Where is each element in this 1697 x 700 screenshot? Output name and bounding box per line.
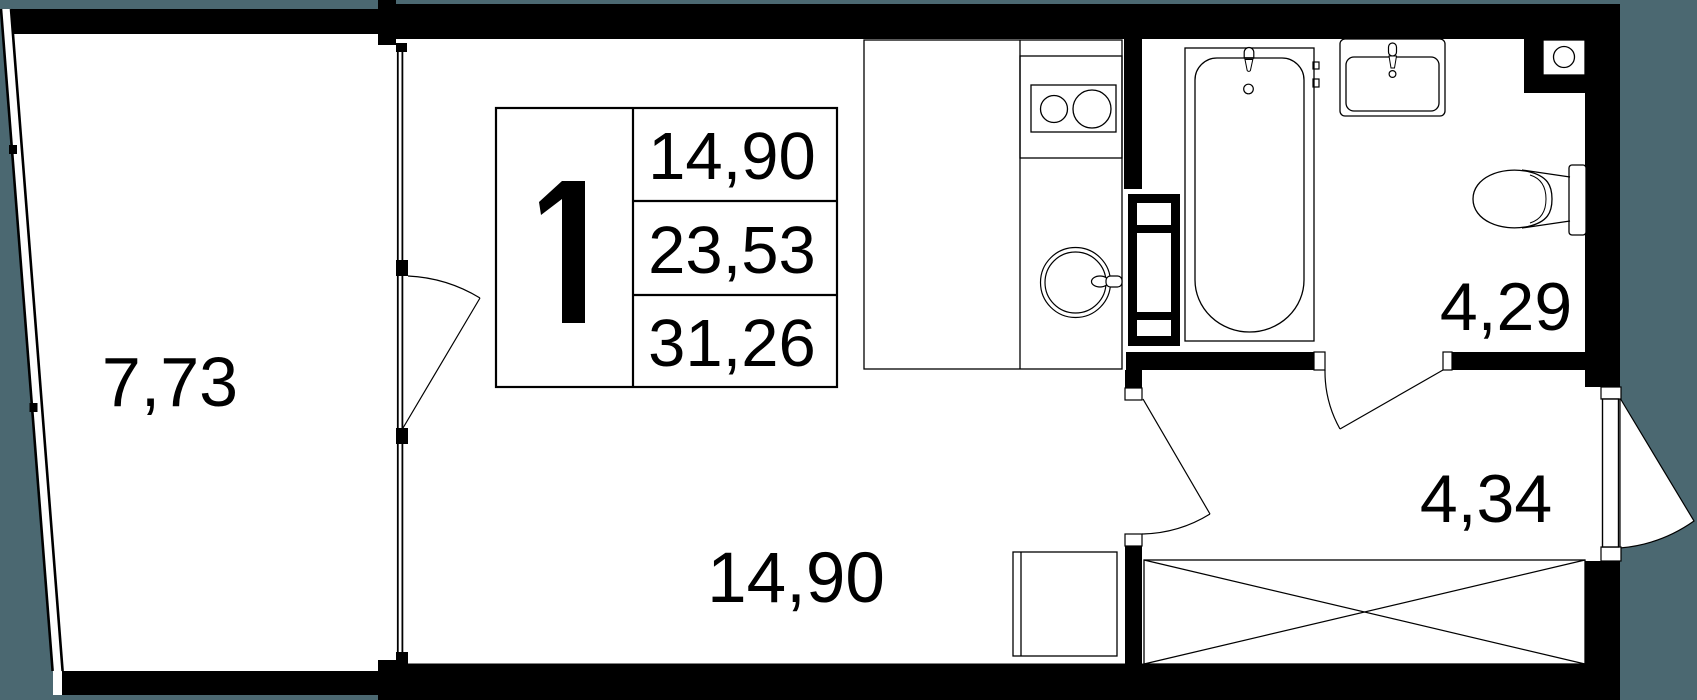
svg-text:7,73: 7,73 xyxy=(102,343,238,421)
svg-text:23,53: 23,53 xyxy=(648,213,816,288)
svg-text:4,34: 4,34 xyxy=(1420,461,1552,537)
svg-text:14,90: 14,90 xyxy=(648,119,816,194)
svg-text:4,29: 4,29 xyxy=(1440,269,1572,345)
svg-text:14,90: 14,90 xyxy=(707,539,885,618)
svg-text:31,26: 31,26 xyxy=(648,306,816,381)
